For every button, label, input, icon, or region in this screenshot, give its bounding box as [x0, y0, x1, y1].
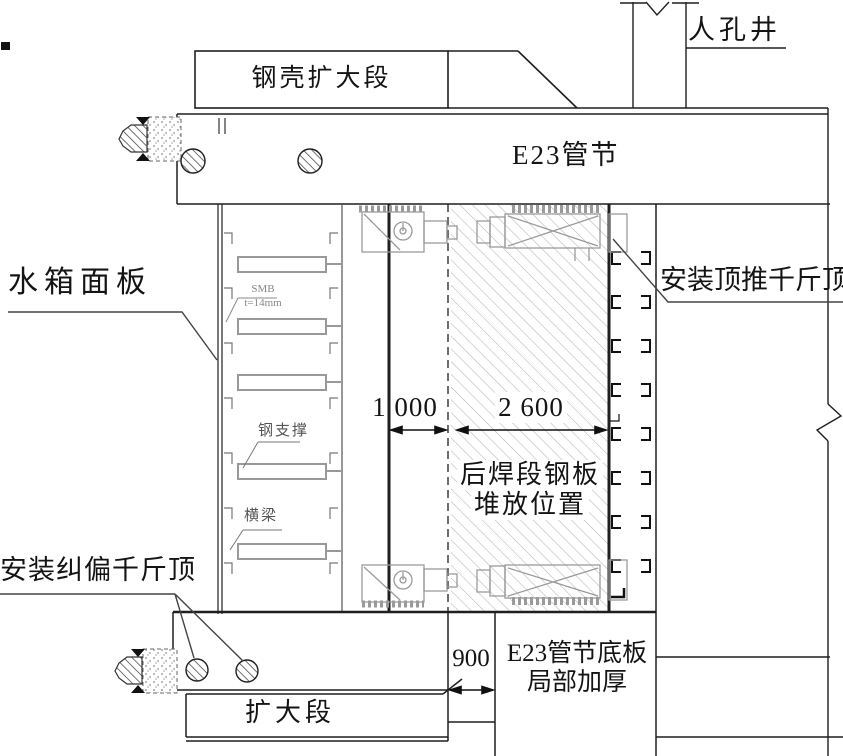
- bolt-circle-icon: [236, 660, 258, 682]
- stacking-label-line1: 后焊段钢板: [457, 460, 603, 490]
- e23-top-beam: [177, 114, 830, 204]
- bottom-jack-left-icon: [362, 565, 457, 604]
- top-anchor-bolt-icon: [119, 117, 181, 161]
- weld-tick: [219, 118, 225, 134]
- bolt-circle-icon: [181, 149, 205, 173]
- bolt-circle-icon: [298, 149, 322, 173]
- break-symbol-right: [817, 404, 841, 441]
- drawing-linework: [0, 0, 843, 756]
- top-jack-left-icon: [359, 209, 457, 252]
- correction-jack-leader: [0, 594, 243, 661]
- dimension-1000: [391, 427, 446, 434]
- e23-segment-label: E23管节: [512, 140, 620, 171]
- correction-jack-label: 安装纠偏千斤顶: [0, 555, 196, 586]
- edge-mark: [1, 42, 10, 50]
- bolt-circle-icon: [186, 659, 208, 681]
- tank-panel-leader: [8, 312, 217, 360]
- bottom-anchor-bolt-icon: [115, 649, 177, 693]
- engineering-drawing: 人孔井 钢壳扩大段 E23管节 水箱面板 SMB t=14mm 钢支撑 横梁 1…: [0, 0, 843, 756]
- enlarged-section-label: 扩大段: [210, 698, 370, 728]
- manhole-label: 人孔井: [688, 15, 781, 46]
- bottom-plate-label-line1: E23管节底板: [498, 640, 656, 669]
- leader-lines: [0, 239, 843, 661]
- plate-spec-line1: SMB: [236, 283, 290, 297]
- plate-spec-line2: t=14mm: [236, 297, 290, 311]
- steel-support-label: 钢支撑: [258, 423, 309, 440]
- push-jack-label: 安装顶推千斤顶: [660, 265, 843, 296]
- water-tank-panel-label: 水箱面板: [8, 266, 152, 301]
- end-frame-cleat-marks: [612, 252, 650, 572]
- dimension-1000-text: 1 000: [364, 392, 446, 423]
- bottom-plate-label-line2: 局部加厚: [498, 669, 656, 698]
- steel-shell-label: 钢壳扩大段: [195, 51, 448, 108]
- stacking-label-line2: 堆放位置: [471, 490, 589, 520]
- right-structure-edge: [817, 108, 841, 756]
- cross-beam-label: 横梁: [244, 508, 278, 525]
- dimension-900: [450, 687, 493, 694]
- break-symbol-top: [646, 2, 669, 15]
- dimension-900-text: 900: [444, 645, 498, 674]
- dimension-2600-text: 2 600: [478, 392, 584, 423]
